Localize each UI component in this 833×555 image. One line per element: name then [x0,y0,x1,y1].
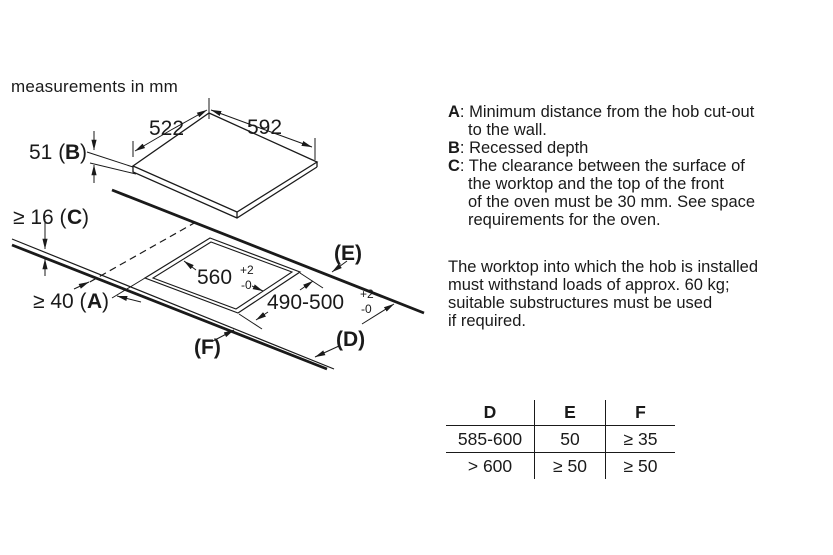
dim-490-500-label: 490-500 [267,291,344,314]
definition-c-line: C: The clearance between the surface of [448,157,755,175]
dim-490-500-tol-plus: +2 [360,287,374,301]
dim-40a-paren: ) [102,290,109,313]
note-line: The worktop into which the hob is instal… [448,258,758,276]
definition-b-line: B: Recessed depth [448,139,755,157]
dim-51b-letter: B [65,141,80,164]
table-header-row: DEF [446,400,675,426]
installation-diagram: 522 592 51 ( B ) ≥ 16 ( C ) ≥ 40 ( A ) 5… [0,0,440,390]
dim-40a-letter: A [87,290,102,313]
edge-f-label: (F) [194,336,221,359]
page: measurements in mm [0,0,833,555]
table-row: 585-60050≥ 35 [446,426,675,453]
dim-560-tol-minus: -0 [241,278,252,292]
edge-d-label: (D) [336,328,365,351]
table-cell: 585-600 [446,426,535,453]
table-header-d: D [446,400,535,426]
worktop-load-note: The worktop into which the hob is instal… [448,258,758,330]
dim-51b-paren: ) [80,141,87,164]
dim-490-500-tol-minus: -0 [361,302,372,316]
definition-c-line: requirements for the oven. [448,211,755,229]
definition-a-line: to the wall. [448,121,755,139]
definition-c-line: the worktop and the top of the front [448,175,755,193]
edge-e-label: (E) [334,242,362,265]
table-cell: 50 [535,426,606,453]
dim-560-tol-plus: +2 [240,263,254,277]
dim-51b-label: 51 ( [29,141,65,164]
dim-16c-label: ≥ 16 ( [13,206,67,229]
note-line: suitable substructures must be used [448,294,758,312]
table-row: > 600≥ 50≥ 50 [446,453,675,480]
definition-c-line: of the oven must be 30 mm. See space [448,193,755,211]
dim-16c-letter: C [67,206,82,229]
note-line: if required. [448,312,758,330]
table-header-e: E [535,400,606,426]
table-cell: ≥ 50 [535,453,606,480]
dim-40a-label: ≥ 40 ( [33,290,87,313]
clearance-table: DEF 585-60050≥ 35> 600≥ 50≥ 50 [446,400,675,479]
dim-522-label: 522 [149,117,184,140]
dim-16c-paren: ) [82,206,89,229]
table-cell: ≥ 50 [606,453,676,480]
definition-a-line: A: Minimum distance from the hob cut-out [448,103,755,121]
table-cell: > 600 [446,453,535,480]
note-line: must withstand loads of approx. 60 kg; [448,276,758,294]
table-cell: ≥ 35 [606,426,676,453]
dim-560-label: 560 [197,266,232,289]
table-header-f: F [606,400,676,426]
dim-592-label: 592 [247,116,282,139]
legend-definitions: A: Minimum distance from the hob cut-out… [448,103,755,229]
wall-projection-dashed-line [88,222,196,283]
